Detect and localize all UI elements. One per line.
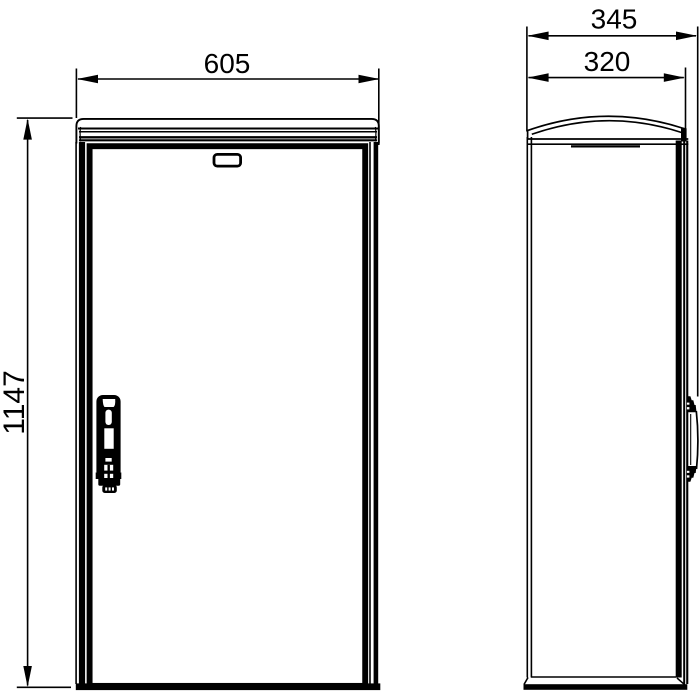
svg-text:345: 345 [591, 4, 638, 35]
svg-text:605: 605 [204, 48, 251, 79]
svg-text:1147: 1147 [0, 370, 31, 435]
svg-text:320: 320 [584, 46, 631, 77]
